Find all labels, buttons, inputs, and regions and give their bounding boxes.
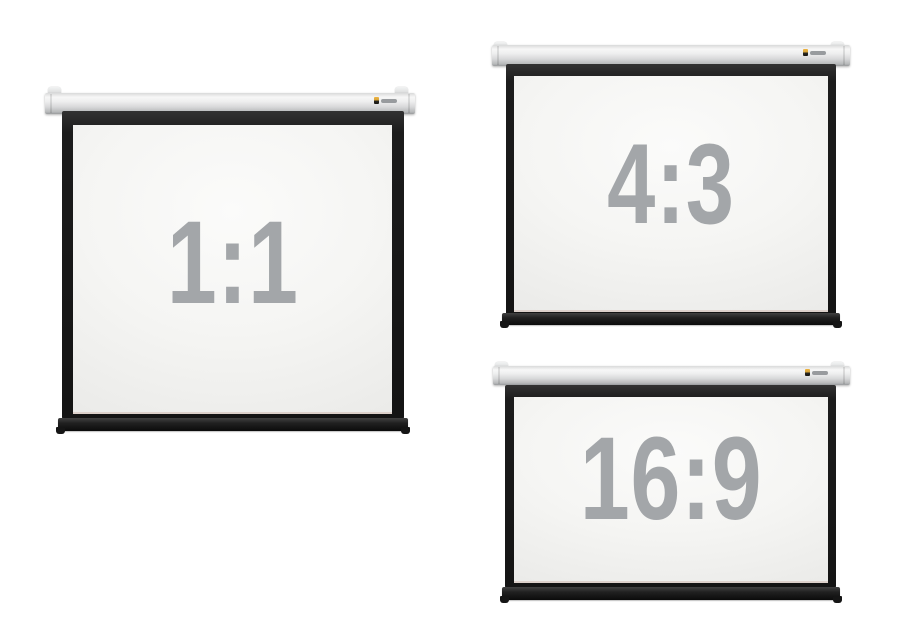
screen-surface: 16:9 [514,397,828,583]
projector-screen-4-3: 4:3 [492,40,850,332]
brand-logo-mark-icon [805,369,810,376]
brand-logo-icon [374,97,397,104]
casing-end-cap [843,46,845,65]
brand-logo-text-icon [812,371,828,375]
screen-frame: 4:3 [506,64,836,316]
bottom-weight-bar [502,313,840,325]
screen-surface: 1:1 [73,125,392,414]
brand-logo-icon [805,369,828,376]
screen-surface: 4:3 [514,76,828,312]
screen-casing [492,45,850,66]
screen-casing [493,366,850,385]
brand-logo-mark-icon [803,49,808,56]
casing-end-cap [408,94,410,113]
bar-end-cap [500,321,509,328]
brand-logo-text-icon [381,99,397,103]
aspect-ratio-label: 1:1 [167,204,299,322]
bar-end-cap [56,427,65,434]
bar-end-cap [833,321,842,328]
projector-screen-16-9: 16:9 [493,360,850,605]
casing-end-cap [497,46,499,65]
bottom-weight-bar [58,418,408,431]
brand-logo-mark-icon [374,97,379,104]
brand-logo-text-icon [810,51,826,55]
bottom-weight-bar [502,587,840,600]
casing-end-cap [50,94,52,113]
projector-screen-1-1: 1:1 [45,87,415,437]
screen-frame: 1:1 [62,111,404,419]
aspect-ratio-label: 16:9 [580,420,763,538]
brand-logo-icon [803,49,826,56]
screen-frame: 16:9 [505,385,836,588]
bar-end-cap [401,427,410,434]
casing-end-cap [843,367,845,384]
aspect-ratio-label: 4:3 [607,128,735,242]
bar-end-cap [500,596,509,603]
casing-end-cap [498,367,500,384]
bar-end-cap [833,596,842,603]
